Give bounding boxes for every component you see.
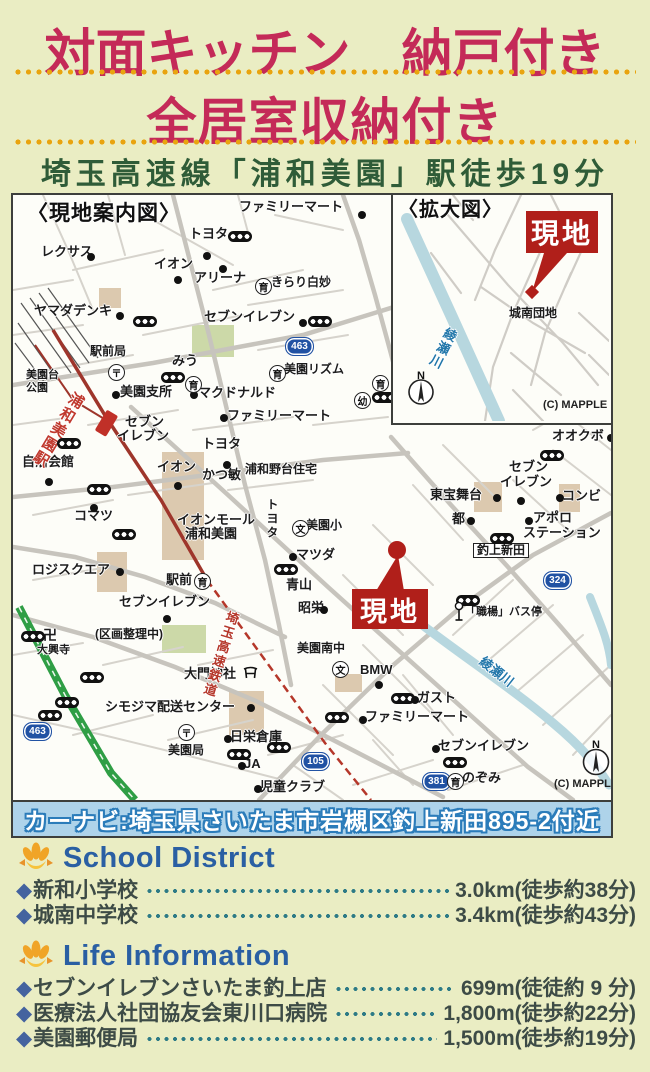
section-title: Life Information [63, 940, 290, 973]
circled-map-icon: 文 [292, 520, 309, 537]
facility-name: 医療法人社団協友会東川口病院 [33, 1001, 327, 1026]
map-label: セブンイレブン [119, 595, 210, 609]
poi-dot [493, 494, 501, 502]
dotted-leader [146, 912, 449, 920]
facility-distance: 699m(徒徒約 9 分) [461, 976, 636, 1001]
traffic-signal-icon [57, 438, 81, 449]
diamond-bullet: ◆ [16, 1001, 32, 1026]
traffic-signal-icon [21, 631, 45, 642]
poi-dot [174, 482, 182, 490]
poi-dot [116, 568, 124, 576]
poi-dot [432, 745, 440, 753]
poi-dot [87, 253, 95, 261]
circled-map-icon: 幼 [354, 392, 371, 409]
poi-dot [254, 785, 262, 793]
poi-dot [607, 434, 611, 442]
map-label: 美園支所 [120, 385, 172, 399]
area-map: 〈現地案内図〉ファミリーマートトヨタレクサスイオンアリーナきらり白妙ヤマダデンキ… [11, 193, 613, 838]
facility-name: 美園郵便局 [33, 1026, 138, 1051]
traffic-signal-icon [540, 450, 564, 461]
school-district-section: School District ◆新和小学校3.0km(徒歩約38分)◆城南中学… [14, 838, 636, 928]
poi-dot [238, 762, 246, 770]
route-shield: 463 [285, 337, 314, 356]
map-label: 児童クラブ [260, 780, 325, 794]
map-label: 東宝舞台 [430, 488, 482, 502]
diamond-bullet: ◆ [16, 976, 32, 1001]
map-label: 美園南中 [297, 642, 345, 655]
map-label: セブン [125, 415, 164, 429]
traffic-signal-icon [112, 529, 136, 540]
facility-item: ◆城南中学校3.4km(徒歩約43分) [16, 903, 636, 928]
map-label: 美園リズム [284, 363, 344, 376]
map-label: 美園小 [306, 519, 342, 532]
map-label: のぞみ [462, 771, 501, 785]
map-label: 浦和美園 [185, 527, 237, 541]
map-label: (区画整理中) [95, 628, 163, 641]
poi-dot [359, 716, 367, 724]
map-label: オオクボ [552, 429, 604, 443]
compass-icon: N [579, 737, 611, 782]
inset-site-diamond [525, 285, 539, 299]
circled-map-icon: 育 [269, 365, 286, 382]
poi-dot [203, 252, 211, 260]
map-label: きらり白妙 [271, 276, 331, 289]
map-label: みう [172, 354, 198, 368]
poi-dot [219, 265, 227, 273]
dotted-rule [14, 68, 636, 76]
map-label: トヨタ [265, 498, 278, 540]
poi-dot [517, 497, 525, 505]
compass-icon: N [405, 369, 437, 412]
traffic-signal-icon [325, 712, 349, 723]
map-label: イオンモール [177, 513, 255, 527]
diamond-bullet: ◆ [16, 1026, 32, 1051]
map-label: ファミリーマート [239, 200, 343, 214]
map-label: (C) MAPPLE [543, 400, 607, 412]
poi-dot [220, 414, 228, 422]
map-label: ステーション [523, 526, 601, 540]
facility-item: ◆美園郵便局1,500m(徒歩約19分) [16, 1026, 636, 1051]
route-shield: 324 [543, 571, 572, 590]
map-label: 浦和野台住宅 [245, 463, 317, 476]
map-label: イレブン [117, 429, 169, 443]
map-label: BMW [360, 663, 393, 677]
poi-dot [112, 391, 120, 399]
map-label: アポロ [533, 511, 572, 525]
map-label: 美園局 [168, 744, 204, 757]
dotted-leader [335, 985, 455, 993]
facility-distance: 1,800m(徒歩約22分) [443, 1001, 636, 1026]
map-label: ヤマダデンキ [34, 304, 112, 318]
traffic-signal-icon [38, 710, 62, 721]
map-label: 都 [452, 512, 465, 526]
map-label: 卍 [43, 628, 57, 643]
map-label: ガスト [417, 691, 456, 705]
site-callout-pointer [376, 555, 404, 591]
poi-dot [224, 735, 232, 743]
circled-map-icon: 文 [332, 661, 349, 678]
poi-dot [45, 478, 53, 486]
facility-distance: 3.0km(徒歩約38分) [455, 878, 636, 903]
facility-item: ◆医療法人社団協友会東川口病院1,800m(徒歩約22分) [16, 1001, 636, 1026]
circled-map-icon: 〒 [178, 724, 195, 741]
map-label: ファミリーマート [365, 710, 469, 724]
map-label: 釣上新田 [473, 543, 529, 558]
circled-map-icon: 育 [255, 278, 272, 295]
map-label: レクサス [41, 245, 93, 259]
traffic-signal-icon [308, 316, 332, 327]
facility-name: セブンイレブンさいたま釣上店 [33, 976, 326, 1001]
poi-dot [289, 553, 297, 561]
traffic-signal-icon [133, 316, 157, 327]
poi-dot [90, 504, 98, 512]
traffic-signal-icon [227, 749, 251, 760]
poi-dot [116, 312, 124, 320]
traffic-signal-icon [267, 742, 291, 753]
dotted-leader [146, 887, 449, 895]
map-label: コンビ [562, 489, 601, 503]
poi-dot [299, 319, 307, 327]
inset-map: 〈拡大図〉城南団地(C) MAPPLE綾瀬川 現地 N [391, 195, 611, 425]
map-label: ロジスクエア [32, 563, 110, 577]
map-label: 美園台 [26, 370, 59, 382]
dotted-leader [335, 1010, 437, 1018]
map-label: イオン [157, 460, 196, 474]
map-label: 「職楊」バス停 [465, 607, 542, 619]
bus-stop-icon [453, 601, 465, 627]
poi-dot [358, 211, 366, 219]
facility-distance: 3.4km(徒歩約43分) [455, 903, 636, 928]
traffic-signal-icon [87, 484, 111, 495]
traffic-signal-icon [80, 672, 104, 683]
facility-item: ◆新和小学校3.0km(徒歩約38分) [16, 878, 636, 903]
map-label: アリーナ [194, 271, 246, 285]
map-label: セブンイレブン [438, 739, 529, 753]
map-label: シモジマ配送センター [105, 700, 235, 714]
poi-dot [556, 494, 564, 502]
map-label: 駅前局 [90, 345, 126, 358]
map-label: 公園 [26, 383, 48, 395]
facility-item: ◆セブンイレブンさいたま釣上店699m(徒徒約 9 分) [16, 976, 636, 1001]
map-label: マクドナルド [198, 386, 276, 400]
poi-dot [247, 704, 255, 712]
map-label: 城南団地 [509, 307, 557, 320]
map-label: ファミリーマート [227, 409, 331, 423]
station-access-subtitle: 埼玉高速線「浦和美園」駅徒歩19分 [0, 149, 650, 193]
life-items: ◆セブンイレブンさいたま釣上店699m(徒徒約 9 分)◆医療法人社団協友会東川… [14, 976, 636, 1051]
poi-dot [223, 461, 231, 469]
dotted-rule [14, 138, 636, 146]
lotus-flower-icon [18, 937, 54, 976]
map-label: 〈拡大図〉 [398, 200, 503, 222]
car-navi-address-banner: カーナビ:埼玉県さいたま市岩槻区釣上新田895-2付近 [13, 800, 611, 836]
traffic-signal-icon [161, 372, 185, 383]
map-label: セブン [509, 460, 548, 474]
map-label: かつ敏 [202, 468, 241, 482]
lotus-flower-icon [18, 839, 54, 878]
poi-dot [163, 615, 171, 623]
site-callout-inset: 現地 [526, 211, 598, 253]
facility-distance: 1,500m(徒歩約19分) [443, 1026, 636, 1051]
section-title: School District [63, 842, 275, 875]
circled-map-icon: 育 [447, 773, 464, 790]
poi-dot [467, 517, 475, 525]
school-items: ◆新和小学校3.0km(徒歩約38分)◆城南中学校3.4km(徒歩約43分) [14, 878, 636, 928]
map-label: マツダ [296, 548, 335, 562]
facility-name: 城南中学校 [33, 903, 138, 928]
site-location-dot [388, 541, 406, 559]
map-label: セブンイレブン [204, 310, 295, 324]
map-label: イオン [154, 257, 193, 271]
site-callout-main: 現地 [352, 589, 428, 629]
map-label: 駅前 [166, 573, 192, 587]
map-label: 大興寺 [37, 645, 70, 657]
map-label: トヨタ [189, 227, 228, 241]
torii-shrine-icon [242, 665, 259, 684]
circled-map-icon: 育 [372, 375, 389, 392]
map-label: イレブン [500, 475, 552, 489]
map-label: トヨタ [202, 437, 241, 451]
diamond-bullet: ◆ [16, 903, 32, 928]
poi-dot [174, 276, 182, 284]
flyer-page: { "header": { "title_line1": "対面キッチン 納戸付… [0, 0, 650, 1072]
traffic-signal-icon [443, 757, 467, 768]
traffic-signal-icon [55, 697, 79, 708]
circled-map-icon: 〒 [108, 364, 125, 381]
traffic-signal-icon [490, 533, 514, 544]
poi-dot [320, 606, 328, 614]
traffic-signal-icon [274, 564, 298, 575]
facility-name: 新和小学校 [33, 878, 138, 903]
poi-dot [525, 517, 533, 525]
dotted-leader [146, 1035, 437, 1043]
route-shield: 105 [301, 752, 330, 771]
poi-dot [411, 696, 419, 704]
map-label: 青山 [286, 578, 312, 592]
poi-dot [375, 681, 383, 689]
map-label: 〈現地案内図〉 [27, 203, 181, 226]
diamond-bullet: ◆ [16, 878, 32, 903]
circled-map-icon: 育 [185, 376, 202, 393]
route-shield: 463 [23, 722, 52, 741]
circled-map-icon: 育 [194, 573, 211, 590]
traffic-signal-icon [228, 231, 252, 242]
life-information-section: Life Information ◆セブンイレブンさいたま釣上店699m(徒徒約… [14, 936, 636, 1051]
